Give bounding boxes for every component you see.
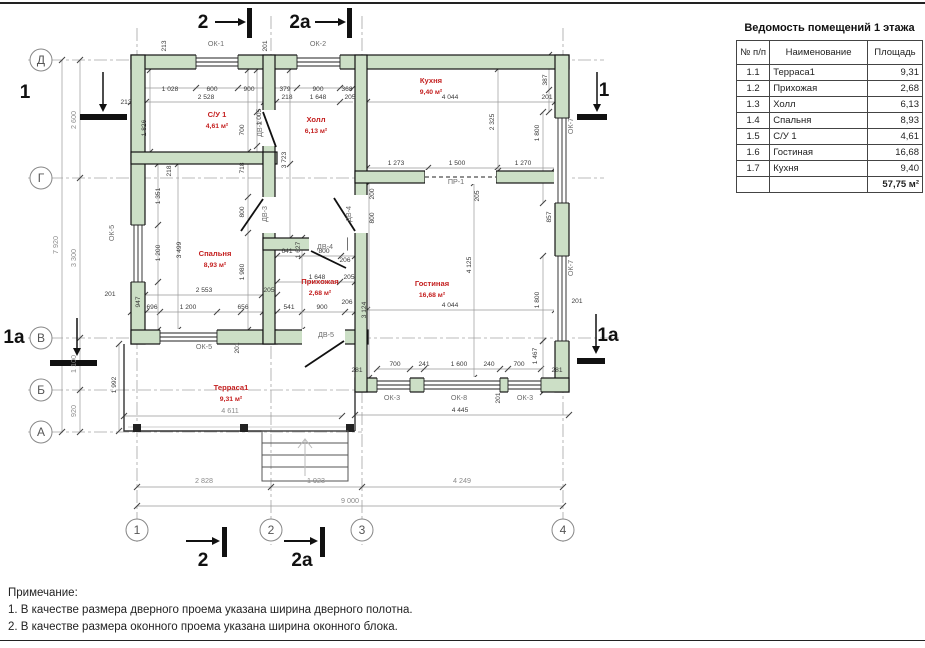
dim-label: 200 (369, 188, 376, 199)
dim-label: 1 992 (111, 376, 118, 393)
dim-label: 1 200 (155, 244, 162, 261)
opening-label: ДВ-4 (344, 206, 353, 222)
room-name-label: Кухня (420, 76, 442, 85)
dim-label: 1 351 (155, 187, 162, 204)
room-name-cell: Спальня (770, 113, 868, 129)
dim-label: 201 (262, 40, 269, 51)
room-name-label: Гостиная (415, 279, 449, 288)
dim-label: 4 249 (453, 476, 471, 485)
table-header-row: № п/п Наименование Площадь (737, 41, 923, 65)
dim-label: 4 611 (221, 406, 238, 415)
table-row: 1.2Прихожая2,68 (737, 81, 923, 97)
room-area-label: 2,68 м² (309, 290, 332, 297)
dim-label: 3 300 (69, 249, 78, 267)
dim-label: 1 648 (310, 94, 327, 101)
room-name-label: Спальня (199, 249, 232, 258)
opening-label: ПР-1 (448, 177, 464, 186)
opening-label: ДВ-2 (255, 121, 264, 137)
floor-plan-sheet: ДГВБА1234 2131 0286009003799003682 52821… (0, 0, 925, 643)
opening-label: ОК-8 (451, 393, 467, 402)
grid-bubble-label: 1 (134, 523, 141, 537)
room-name-cell: Терраса1 (770, 65, 868, 81)
grid-bubble-label: 4 (560, 523, 567, 537)
table-total-row: 57,75 м² (737, 177, 923, 193)
section-2a-top (315, 8, 352, 38)
grid-bubble-label: Г (38, 171, 45, 185)
row-number-cell: 1.6 (737, 145, 770, 161)
dim-label: 1 923 (307, 476, 325, 485)
dim-label: 201 (104, 291, 115, 298)
wall-bath-right (263, 55, 275, 164)
dim-label: 4 044 (442, 94, 459, 101)
sheet-top-border (0, 2, 925, 4)
row-number-cell: 1.4 (737, 113, 770, 129)
section-number: 2 (198, 12, 209, 33)
note-line-2: 2. В качестве размера оконного проема ук… (8, 619, 413, 636)
table-row: 1.6Гостиная16,68 (737, 145, 923, 161)
sheet-bottom-border (0, 640, 925, 641)
opening-label: ДВ-4 (317, 242, 333, 251)
row-number-cell: 1.2 (737, 81, 770, 97)
dim-label: 218 (281, 94, 292, 101)
room-name-cell: Кухня (770, 161, 868, 177)
dim-label: 800 (369, 212, 376, 223)
room-area-cell: 4,61 (867, 129, 922, 145)
dim-label: 201 (495, 392, 502, 403)
room-area-label: 9,31 м² (220, 396, 243, 403)
room-name-label: Холл (306, 115, 325, 124)
room-name-cell: Холл (770, 97, 868, 113)
dim-label: 1 028 (162, 86, 179, 93)
dim-label: 656 (237, 304, 248, 311)
grid-bubble-label: 3 (359, 523, 366, 537)
room-area-label: 8,93 м² (204, 262, 227, 269)
dim-label: 206 (341, 299, 352, 306)
dim-label: 213 (161, 40, 168, 51)
room-name-cell: С/У 1 (770, 129, 868, 145)
dim-label: 2 828 (195, 476, 213, 485)
dim-label: 240 (483, 361, 494, 368)
row-number-cell: 1.1 (737, 65, 770, 81)
dim-label: 1 273 (388, 160, 405, 167)
dim-label: 4 125 (466, 256, 473, 273)
dim-label: 718 (239, 162, 246, 173)
room-area-label: 9,40 м² (420, 89, 443, 96)
section-number: 1 (599, 80, 610, 101)
dim-label: 1 600 (451, 361, 468, 368)
dim-label: 281 (551, 367, 562, 374)
room-area-cell: 9,31 (867, 65, 922, 81)
section-number: 2a (291, 550, 313, 571)
dim-label: 213 (120, 99, 131, 106)
dim-label: 387 (542, 74, 549, 85)
dim-label: 4 445 (452, 407, 469, 414)
dim-label: 700 (389, 361, 400, 368)
grid-bubble-label: В (37, 331, 45, 345)
dim-label: 947 (135, 296, 142, 307)
row-number-cell: 1.3 (737, 97, 770, 113)
section-number: 2a (289, 12, 311, 33)
total-empty-cell (737, 177, 770, 193)
dim-label: 920 (69, 405, 78, 417)
table-row: 1.5С/У 14,61 (737, 129, 923, 145)
dim-label: 857 (546, 211, 553, 222)
dim-label: 3 723 (281, 151, 288, 168)
dim-label: 205 (474, 190, 481, 201)
room-name-cell: Прихожая (770, 81, 868, 97)
dim-label: 696 (146, 304, 157, 311)
dim-label: 205 (343, 274, 354, 281)
opening-label: ОК-3 (517, 393, 533, 402)
col-header-area: Площадь (867, 41, 922, 65)
dim-label: 4 044 (442, 302, 459, 309)
section-number: 2 (198, 550, 209, 571)
dim-label: 541 (283, 304, 294, 311)
room-name-label: С/У 1 (208, 110, 227, 119)
dim-label: 368 (341, 86, 352, 93)
opening-label: ОК-7 (566, 118, 575, 134)
table-row: 1.7Кухня9,40 (737, 161, 923, 177)
rooms-schedule-table: № п/п Наименование Площадь 1.1Терраса19,… (736, 40, 923, 193)
opening-label: ОК-1 (208, 39, 224, 48)
col-header-number: № п/п (737, 41, 770, 65)
dim-label: 379 (279, 86, 290, 93)
dim-label: 2 553 (196, 287, 213, 294)
dim-label: 1 467 (532, 347, 539, 364)
dim-label: 1 627 (295, 241, 302, 258)
section-1-top-left (80, 72, 127, 120)
notes-block: Примечание: 1. В качестве размера дверно… (8, 585, 413, 636)
dim-label: 281 (351, 367, 362, 374)
room-area-label: 16,68 м² (419, 292, 446, 299)
rooms-schedule: Ведомость помещений 1 этажа № п/п Наимен… (736, 22, 923, 193)
dim-label: 9 000 (341, 496, 359, 505)
section-number: 1a (597, 325, 619, 346)
dim-label: 800 (239, 206, 246, 217)
opening-label: ДВ-3 (260, 206, 269, 222)
opening-label: ДВ-5 (318, 330, 334, 339)
dim-label: 600 (206, 86, 217, 93)
room-area-cell: 2,68 (867, 81, 922, 97)
grid-bubble-label: А (37, 425, 45, 439)
opening-label: ОК-5 (196, 342, 212, 351)
room-name-label: Терраса1 (214, 383, 250, 392)
section-number: 1 (20, 82, 31, 103)
grid-bubble-label: Д (37, 53, 45, 67)
section-number: 1a (3, 327, 25, 348)
rooms-schedule-title: Ведомость помещений 1 этажа (736, 22, 923, 34)
grid-bubble-label: 2 (268, 523, 275, 537)
opening-label: ОК-7 (566, 260, 575, 276)
room-area-cell: 9,40 (867, 161, 922, 177)
dim-label: 1 826 (141, 119, 148, 136)
dim-label: 1 800 (534, 124, 541, 141)
table-row: 1.1Терраса19,31 (737, 65, 923, 81)
dim-label: 7 920 (51, 236, 60, 254)
room-area-cell: 8,93 (867, 113, 922, 129)
room-area-label: 4,61 м² (206, 123, 229, 130)
wall-kitchen-stub-left (355, 171, 425, 183)
wall-bath-bottom (131, 152, 277, 164)
opening-label: ОК-3 (384, 393, 400, 402)
room-name-cell: Гостиная (770, 145, 868, 161)
col-header-name: Наименование (770, 41, 868, 65)
notes-title: Примечание: (8, 585, 413, 602)
dim-label: 900 (243, 86, 254, 93)
dim-label: 2 600 (69, 111, 78, 129)
stairs (262, 431, 348, 481)
dim-label: 3 499 (176, 241, 183, 258)
row-number-cell: 1.7 (737, 161, 770, 177)
room-area-cell: 6,13 (867, 97, 922, 113)
table-row: 1.3Холл6,13 (737, 97, 923, 113)
dim-label: 3 124 (361, 301, 368, 318)
dim-label: 1 500 (449, 160, 466, 167)
note-line-1: 1. В качестве размера дверного проема ук… (8, 602, 413, 619)
room-area-cell: 16,68 (867, 145, 922, 161)
table-row: 1.4Спальня8,93 (737, 113, 923, 129)
total-area-cell: 57,75 м² (867, 177, 922, 193)
dim-label: 1 270 (515, 160, 532, 167)
dim-label: 218 (166, 165, 173, 176)
dim-label: 205 (263, 287, 274, 294)
dim-label: 2 528 (198, 94, 215, 101)
dim-label: 900 (312, 86, 323, 93)
dim-label: 201 (234, 342, 241, 353)
dim-label: 1 200 (180, 304, 197, 311)
dim-label: 1 800 (534, 291, 541, 308)
dim-label: 700 (239, 124, 246, 135)
room-name-label: Прихожая (301, 277, 338, 286)
dim-label: 700 (513, 361, 524, 368)
total-empty-cell (770, 177, 868, 193)
dim-label: 205 (344, 94, 355, 101)
dim-label: 641 (281, 248, 292, 255)
dim-label: 1 980 (239, 263, 246, 280)
dim-label: 201 (571, 298, 582, 305)
dim-label: 241 (418, 361, 429, 368)
dim-label: 206 (339, 257, 350, 264)
opening-labels: ОК-1ОК-2ОК-5ОК-5ОК-7ОК-7ОК-3ОК-8ОК-3ПР-1… (107, 39, 575, 402)
dim-label: 900 (316, 304, 327, 311)
opening-label: ОК-2 (310, 39, 326, 48)
grid-bubble-label: Б (37, 383, 45, 397)
section-2-top (215, 8, 252, 38)
row-number-cell: 1.5 (737, 129, 770, 145)
dim-label: 201 (541, 94, 552, 101)
dim-label: 1 100 (69, 355, 78, 373)
opening-label: ОК-5 (107, 225, 116, 241)
stairs-up-arrow (298, 439, 312, 476)
dim-label: 2 325 (489, 113, 496, 130)
wall-kitchen-stub-right (496, 171, 555, 183)
room-area-label: 6,13 м² (305, 128, 328, 135)
